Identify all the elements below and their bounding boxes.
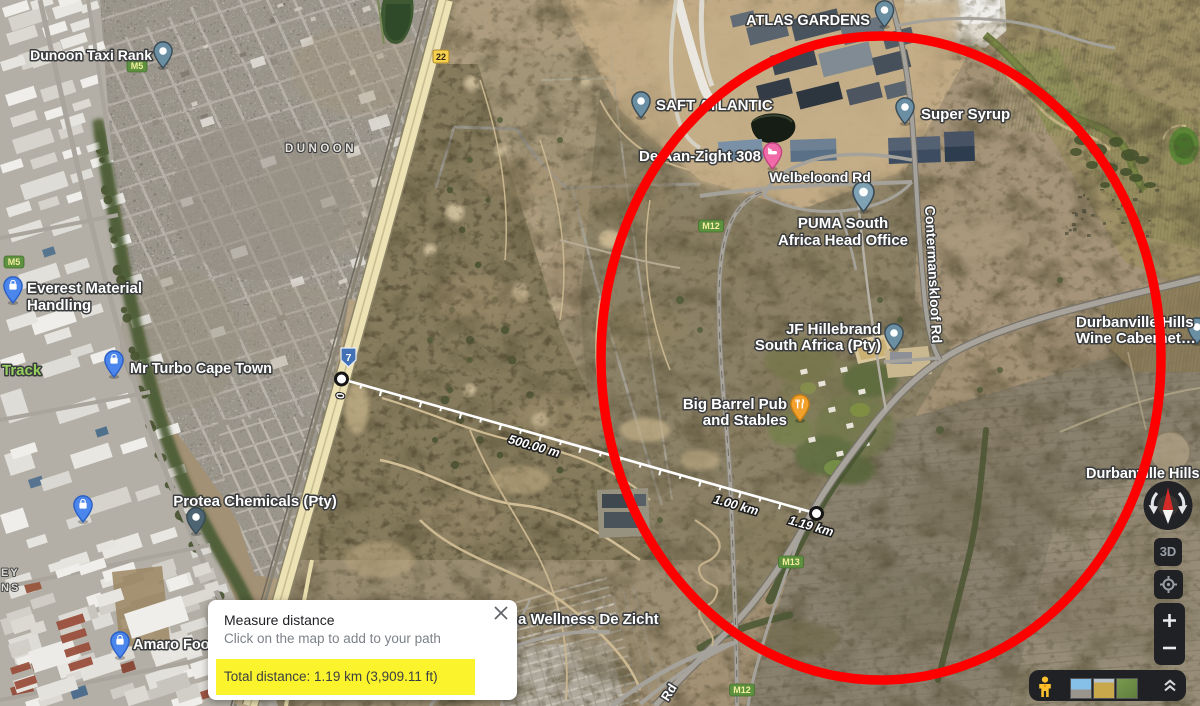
svg-text:JF Hillebrand: JF Hillebrand (786, 321, 881, 338)
svg-text:Handling: Handling (27, 297, 91, 314)
svg-text:and Stables: and Stables (703, 412, 787, 429)
svg-text:Track: Track (2, 362, 42, 379)
svg-text:DUNOON: DUNOON (285, 143, 357, 155)
svg-text:Super Syrup: Super Syrup (921, 106, 1010, 123)
svg-text:Durbanville Hills: Durbanville Hills (1076, 314, 1194, 331)
svg-text:ATLAS GARDENS: ATLAS GARDENS (746, 13, 870, 29)
svg-text:Dunoon Taxi Rank: Dunoon Taxi Rank (30, 47, 152, 63)
svg-text:7: 7 (346, 352, 352, 364)
svg-text:Protea Chemicals (Pty): Protea Chemicals (Pty) (173, 493, 336, 510)
svg-text:PUMA South: PUMA South (798, 215, 888, 232)
svg-text:Wine Cabernet…: Wine Cabernet… (1076, 330, 1196, 347)
svg-text:22: 22 (436, 52, 446, 62)
svg-text:M12: M12 (733, 685, 751, 695)
svg-text:M12: M12 (702, 221, 720, 231)
svg-text:Big Barrel Pub: Big Barrel Pub (683, 396, 787, 413)
svg-text:Mr Turbo Cape Town: Mr Turbo Cape Town (130, 361, 272, 377)
svg-text:EY: EY (1, 567, 20, 579)
svg-text:a Wellness De Zicht: a Wellness De Zicht (518, 611, 659, 628)
svg-text:M13: M13 (782, 557, 800, 567)
svg-text:South Africa (Pty): South Africa (Pty) (755, 337, 881, 354)
svg-text:Everest Material: Everest Material (27, 280, 142, 297)
svg-text:M5: M5 (8, 257, 21, 267)
svg-text:Africa Head Office: Africa Head Office (778, 232, 908, 249)
svg-text:NS: NS (1, 582, 20, 594)
svg-text:Welbeloond Rd: Welbeloond Rd (769, 169, 871, 185)
